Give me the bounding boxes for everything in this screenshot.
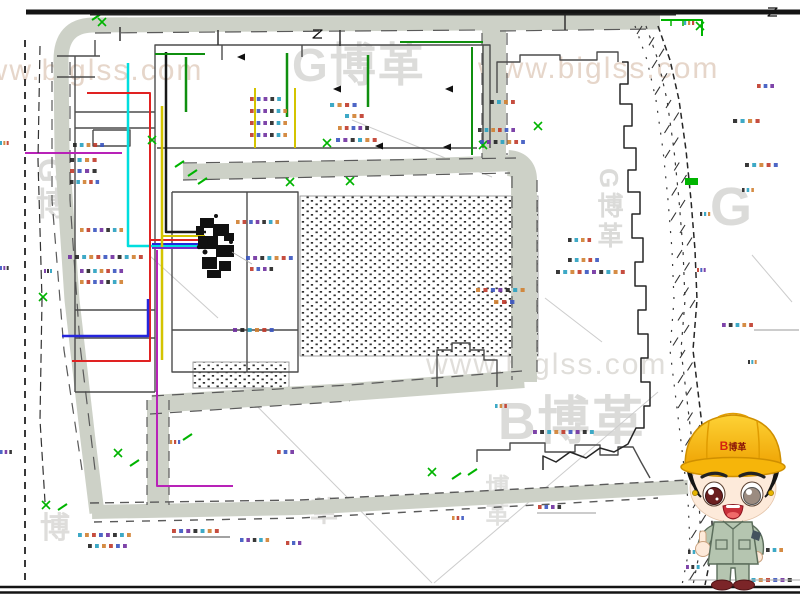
slope-tick [680, 200, 685, 208]
annotation-text-cluster [575, 258, 579, 262]
mascot-hat-brim [681, 458, 785, 477]
equipment-dot [210, 273, 214, 277]
annotation-text-cluster [521, 288, 525, 292]
annotation-text-cluster [747, 188, 750, 192]
annotation-text-cluster [583, 430, 587, 434]
annotation-text-cluster [9, 450, 12, 454]
annotation-text-cluster [742, 188, 745, 192]
annotation-text-cluster [82, 255, 86, 259]
annotation-text-cluster [92, 533, 96, 537]
annotation-text-cluster [93, 158, 97, 162]
site-boundary-stepped [543, 62, 650, 470]
annotation-text-cluster [100, 280, 104, 284]
dimension-dash [183, 434, 192, 440]
building-outline [155, 45, 490, 148]
annotation-text-cluster [87, 143, 91, 147]
slope-tick [673, 338, 678, 346]
annotation-text-cluster [476, 288, 480, 292]
annotation-text-cluster [595, 258, 599, 262]
annotation-text-cluster [751, 360, 753, 364]
annotation-text-cluster [3, 141, 5, 145]
annotation-text-cluster [80, 280, 84, 284]
annotation-text-cluster [480, 140, 484, 144]
annotation-text-cluster [85, 158, 89, 162]
annotation-text-cluster [186, 529, 190, 533]
annotation-text-cluster [491, 128, 495, 132]
annotation-text-cluster [345, 126, 349, 130]
annotation-text-cluster [267, 256, 271, 260]
annotation-text-cluster [0, 141, 2, 145]
annotation-text-cluster [253, 256, 257, 260]
annotation-text-cluster [704, 268, 706, 272]
annotation-text-cluster [500, 404, 503, 408]
equipment-dot [203, 250, 208, 255]
annotation-text-cluster [538, 505, 542, 509]
annotation-text-cluster [139, 255, 143, 259]
eye-highlight [716, 498, 719, 501]
annotation-text-cluster [506, 288, 510, 292]
annotation-text-cluster [96, 180, 100, 184]
annotation-text-cluster [78, 533, 82, 537]
annotation-text-cluster [745, 163, 749, 167]
annotation-text-cluster [505, 128, 509, 132]
annotation-text-cluster [330, 103, 334, 107]
annotation-text-cluster [365, 138, 369, 142]
annotation-text-cluster [757, 84, 761, 88]
mascot-tongue [727, 512, 739, 518]
annotation-text-cluster [93, 169, 97, 173]
mascot-strap-button-left [692, 490, 697, 495]
annotation-text-cluster [511, 128, 515, 132]
annotation-text-cluster [461, 516, 464, 520]
annotation-text-cluster [513, 288, 517, 292]
annotation-text-cluster [95, 544, 99, 548]
slope-tick [674, 113, 679, 121]
slope-tick [687, 238, 692, 246]
dimension-dash [452, 473, 461, 479]
annotation-text-cluster [249, 220, 253, 224]
annotation-text-cluster [494, 300, 498, 304]
annotation-text-cluster [510, 300, 514, 304]
annotation-text-cluster [263, 133, 267, 137]
annotation-text-cluster [269, 220, 273, 224]
annotation-text-cluster [755, 360, 757, 364]
annotation-text-cluster [99, 533, 103, 537]
annotation-text-cluster [558, 505, 562, 509]
annotation-text-cluster [684, 21, 686, 25]
annotation-text-cluster [113, 228, 117, 232]
building-outline [497, 52, 618, 93]
annotation-text-cluster [257, 121, 261, 125]
annotation-text-cluster [96, 255, 100, 259]
annotation-text-cluster [47, 269, 49, 273]
annotation-text-cluster [588, 238, 592, 242]
annotation-text-cluster [109, 544, 113, 548]
annotation-text-cluster [70, 158, 74, 162]
annotation-text-cluster [749, 323, 753, 327]
equipment-block [224, 233, 234, 241]
annotation-text-cluster [551, 505, 555, 509]
annotation-text-cluster [93, 228, 97, 232]
annotation-text-cluster [770, 84, 774, 88]
fold-line [545, 298, 602, 342]
annotation-text-cluster [533, 430, 537, 434]
annotation-text-cluster [498, 288, 502, 292]
slope-tick [680, 350, 685, 358]
annotation-text-cluster [70, 169, 74, 173]
annotation-text-cluster [260, 256, 264, 260]
annotation-text-cluster [568, 258, 572, 262]
annotation-text-cluster [568, 238, 572, 242]
slope-tick [673, 138, 678, 146]
annotation-text-cluster [257, 97, 261, 101]
annotation-text-cluster [87, 269, 91, 273]
annotation-text-cluster [106, 280, 110, 284]
annotation-text-cluster [485, 128, 489, 132]
annotation-text-cluster [70, 180, 74, 184]
annotation-text-cluster [283, 109, 287, 113]
mascot-shoe-left [712, 580, 733, 590]
annotation-text-cluster [547, 430, 551, 434]
annotation-text-cluster [113, 280, 117, 284]
annotation-text-cluster [44, 269, 46, 273]
annotation-text-cluster [257, 267, 261, 271]
annotation-text-cluster [125, 255, 129, 259]
annotation-text-cluster [259, 538, 263, 542]
equipment-dot [229, 240, 233, 244]
annotation-text-cluster [614, 270, 618, 274]
slope-tick [665, 150, 670, 158]
annotation-text-cluster [179, 529, 183, 533]
slope-tick [677, 250, 682, 258]
annotation-text-cluster [373, 138, 377, 142]
annotation-text-cluster [774, 163, 778, 167]
annotation-text-cluster [581, 238, 585, 242]
annotation-text-cluster [178, 440, 180, 444]
annotation-text-cluster [89, 180, 93, 184]
annotation-text-cluster [569, 430, 573, 434]
annotation-text-cluster [113, 269, 117, 273]
annotation-text-cluster [292, 541, 295, 545]
annotation-text-cluster [236, 220, 240, 224]
annotation-text-cluster [264, 97, 268, 101]
annotation-text-cluster [7, 266, 9, 270]
annotation-text-cluster [563, 270, 567, 274]
annotation-text-cluster [487, 140, 491, 144]
annotation-text-cluster [540, 430, 544, 434]
annotation-text-cluster [507, 140, 511, 144]
annotation-text-cluster [106, 533, 110, 537]
annotation-text-cluster [497, 100, 501, 104]
slope-tick [652, 60, 657, 68]
annotation-text-cluster [621, 270, 625, 274]
dimension-dash [130, 460, 139, 466]
annotation-text-cluster [170, 440, 172, 444]
building-outline [172, 192, 298, 372]
annotation-text-cluster [585, 270, 589, 274]
annotation-text-cluster [270, 121, 274, 125]
annotation-text-cluster [78, 169, 82, 173]
annotation-text-cluster [494, 140, 498, 144]
annotation-text-cluster [561, 430, 565, 434]
annotation-text-cluster [338, 103, 342, 107]
annotation-text-cluster [491, 288, 495, 292]
annotation-text-cluster [599, 270, 603, 274]
drawing-frame [38, 46, 45, 502]
annotation-text-cluster [263, 109, 267, 113]
annotation-text-cluster [590, 430, 594, 434]
annotation-text-cluster [246, 256, 250, 260]
equipment-dot [225, 248, 230, 253]
annotation-text-cluster [102, 544, 106, 548]
annotation-text-cluster [233, 328, 237, 332]
road [183, 163, 516, 172]
annotation-text-cluster [556, 270, 560, 274]
annotation-text-cluster [575, 238, 579, 242]
annotation-text-cluster [85, 533, 89, 537]
mascot-iris-right [744, 488, 761, 505]
annotation-text-cluster [89, 255, 93, 259]
mascot-strap-button-right [768, 490, 773, 495]
equipment-dot [217, 227, 223, 233]
annotation-text-cluster [0, 450, 3, 454]
slope-tick [684, 325, 689, 333]
annotation-text-cluster [338, 126, 342, 130]
annotation-text-cluster [277, 450, 281, 454]
slope-tick [675, 275, 680, 283]
annotation-text-cluster [270, 267, 274, 271]
annotation-text-cluster [100, 228, 104, 232]
annotation-text-cluster [360, 114, 364, 118]
mascot-hat-logo: B博革 [720, 439, 747, 453]
equipment-dot [204, 220, 209, 225]
annotation-text-cluster [270, 97, 274, 101]
annotation-text-cluster [250, 267, 254, 271]
annotation-text-cluster [87, 228, 91, 232]
annotation-text-cluster [700, 268, 702, 272]
mascot-teeth [726, 505, 740, 508]
building-outline [93, 130, 130, 146]
annotation-text-cluster [554, 430, 558, 434]
annotation-text-cluster [478, 128, 482, 132]
annotation-text-cluster [495, 404, 498, 408]
annotation-text-cluster [298, 541, 301, 545]
equipment-dot [197, 245, 201, 249]
annotation-text-cluster [277, 97, 281, 101]
equipment-block [202, 257, 217, 269]
slope-tick [678, 375, 683, 383]
annotation-text-cluster [722, 323, 726, 327]
annotation-text-cluster [606, 270, 610, 274]
annotation-text-cluster [498, 128, 502, 132]
annotation-text-cluster [270, 328, 274, 332]
annotation-text-cluster [504, 404, 507, 408]
annotation-text-cluster [127, 533, 131, 537]
fold-line [752, 255, 792, 302]
annotation-text-cluster [132, 255, 136, 259]
annotation-text-cluster [748, 119, 752, 123]
annotation-text-cluster [243, 220, 247, 224]
annotation-text-cluster [76, 180, 80, 184]
arrow-marker [333, 86, 341, 93]
slope-tick [687, 388, 692, 396]
annotation-text-cluster [257, 133, 261, 137]
annotation-text-cluster [116, 544, 120, 548]
annotation-text-cluster [570, 270, 574, 274]
annotation-text-cluster [262, 220, 266, 224]
annotation-text-cluster [545, 505, 549, 509]
annotation-text-cluster [345, 103, 349, 107]
slope-tick [671, 213, 676, 221]
annotation-text-cluster [250, 121, 254, 125]
annotation-text-cluster [688, 21, 690, 25]
annotation-text-cluster [3, 266, 5, 270]
equipment-block [196, 226, 204, 235]
dimension-dash [175, 161, 184, 167]
slope-tick [684, 288, 689, 296]
annotation-text-cluster [250, 133, 254, 137]
annotation-text-cluster [736, 323, 740, 327]
slope-tick [665, 125, 670, 133]
slope-tick [659, 49, 664, 57]
eye-highlight [708, 489, 714, 495]
annotation-text-cluster [767, 163, 771, 167]
annotation-text-cluster [759, 163, 763, 167]
annotation-text-cluster [283, 121, 287, 125]
annotation-text-cluster [93, 280, 97, 284]
annotation-text-cluster [75, 255, 79, 259]
annotation-text-cluster [284, 450, 288, 454]
annotation-text-cluster [119, 228, 123, 232]
annotation-text-cluster [100, 269, 104, 273]
slope-tick [672, 188, 677, 196]
annotation-text-cluster [741, 119, 745, 123]
annotation-text-cluster [582, 258, 586, 262]
annotation-text-cluster [68, 255, 72, 259]
hatched-area [300, 196, 538, 356]
annotation-text-cluster [266, 538, 270, 542]
annotation-text-cluster [752, 163, 756, 167]
mascot-engineer: B博革 [676, 404, 798, 594]
slope-tick [649, 37, 654, 45]
annotation-text-cluster [106, 228, 110, 232]
annotation-text-cluster [263, 121, 267, 125]
annotation-text-cluster [277, 121, 281, 125]
eye-highlight [746, 489, 752, 495]
annotation-text-cluster [50, 269, 52, 273]
annotation-text-cluster [262, 328, 266, 332]
mascot-fist [696, 542, 711, 557]
annotation-text-cluster [113, 533, 117, 537]
annotation-text-cluster [118, 255, 122, 259]
annotation-text-cluster [733, 119, 737, 123]
dimension-dash [58, 504, 67, 510]
road [92, 487, 688, 512]
mascot-iris-left [706, 488, 723, 505]
annotation-text-cluster [248, 328, 252, 332]
annotation-text-cluster [452, 516, 455, 520]
annotation-text-cluster [286, 541, 289, 545]
annotation-text-cluster [270, 133, 274, 137]
annotation-text-cluster [123, 544, 127, 548]
annotation-text-cluster [73, 143, 77, 147]
equipment-dot [220, 264, 225, 269]
fold-line [243, 392, 432, 583]
annotation-text-cluster [256, 220, 260, 224]
annotation-text-cluster [93, 143, 97, 147]
annotation-text-cluster [80, 143, 84, 147]
annotation-text-cluster [352, 126, 356, 130]
equipment-dot [214, 214, 218, 218]
slope-tick [678, 313, 683, 321]
annotation-text-cluster [697, 268, 699, 272]
annotation-text-cluster [215, 529, 219, 533]
green-marker [685, 178, 698, 185]
annotation-text-cluster [120, 533, 124, 537]
annotation-text-cluster [193, 529, 197, 533]
annotation-text-cluster [501, 140, 505, 144]
annotation-text-cluster [282, 256, 286, 260]
equipment-dot [207, 239, 213, 245]
mascot-pants [717, 564, 749, 582]
annotation-text-cluster [692, 21, 694, 25]
annotation-text-cluster [756, 119, 760, 123]
annotation-text-cluster [100, 143, 104, 147]
annotation-text-cluster [700, 212, 702, 216]
arrow-marker [443, 144, 451, 151]
annotation-text-cluster [80, 269, 84, 273]
slope-tick [666, 100, 671, 108]
arrow-marker [445, 86, 453, 93]
annotation-text-cluster [275, 256, 279, 260]
annotation-text-cluster [106, 269, 110, 273]
equipment-block [207, 270, 221, 278]
annotation-text-cluster [588, 258, 592, 262]
annotation-text-cluster [201, 529, 205, 533]
annotation-text-cluster [119, 269, 123, 273]
annotation-text-cluster [576, 430, 580, 434]
annotation-text-cluster [277, 133, 281, 137]
slope-tick [688, 363, 693, 371]
annotation-text-cluster [365, 126, 369, 130]
annotation-text-cluster [263, 267, 267, 271]
cad-site-plan-screenshot: www.biglss.comG博革www.biglss.comG博G博革Gwww… [0, 0, 800, 600]
slope-tick [690, 300, 695, 308]
annotation-text-cluster [751, 188, 754, 192]
annotation-text-cluster [88, 544, 92, 548]
annotation-text-cluster [5, 450, 8, 454]
arrow-marker [237, 54, 245, 61]
annotation-text-cluster [78, 158, 82, 162]
utility-line-red [72, 93, 150, 361]
slope-tick [680, 225, 685, 233]
annotation-text-cluster [521, 140, 525, 144]
annotation-text-cluster [336, 138, 340, 142]
annotation-text-cluster [85, 169, 89, 173]
annotation-text-cluster [504, 100, 508, 104]
annotation-text-cluster [0, 266, 2, 270]
annotation-text-cluster [257, 109, 261, 113]
annotation-text-cluster [172, 529, 176, 533]
annotation-text-cluster [277, 109, 281, 113]
annotation-text-cluster [253, 538, 257, 542]
slope-tick [685, 263, 690, 271]
annotation-text-cluster [502, 300, 506, 304]
annotation-text-cluster [7, 141, 9, 145]
slope-tick [662, 73, 667, 81]
annotation-text-cluster [358, 126, 362, 130]
mascot-shoe-right [734, 580, 755, 590]
